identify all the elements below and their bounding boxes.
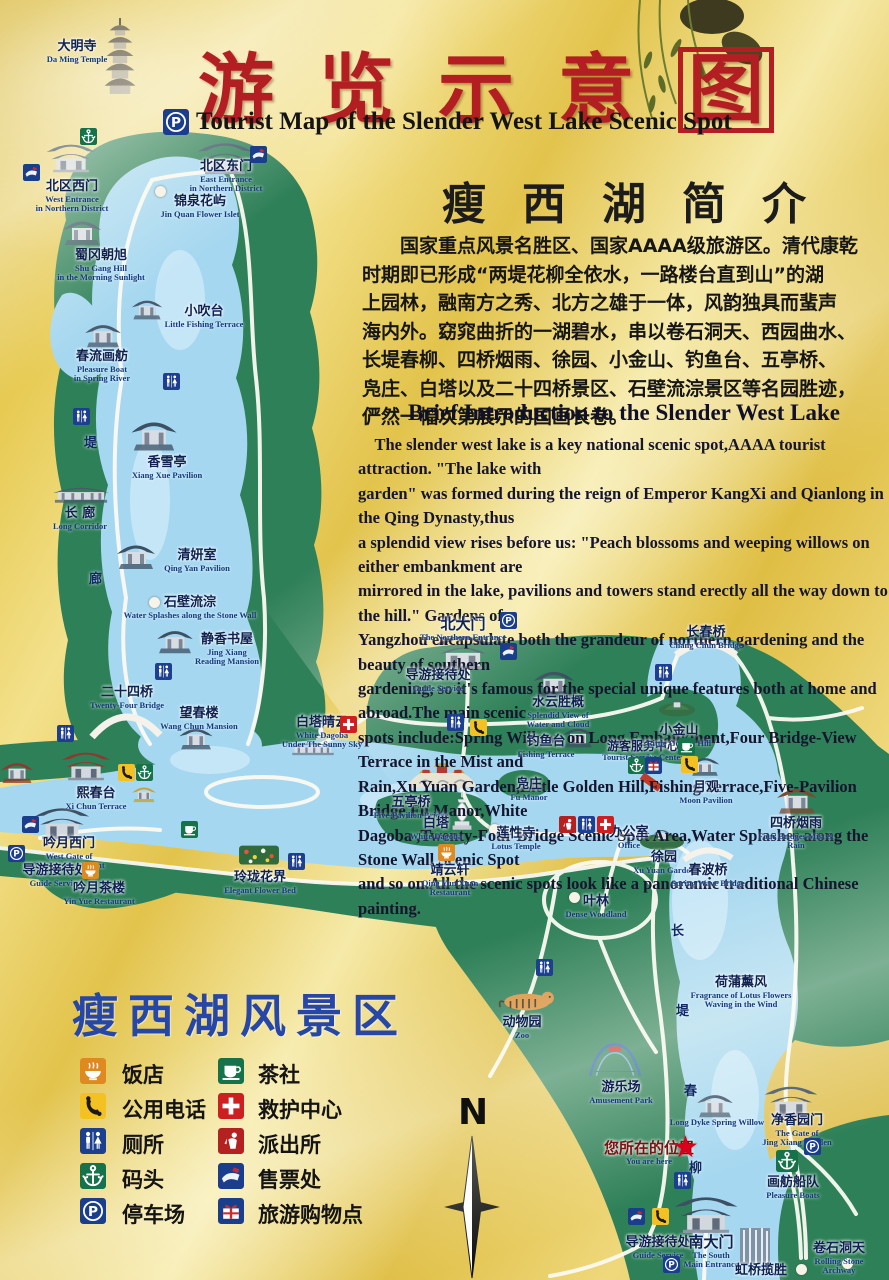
- dock-icon: [776, 1150, 798, 1172]
- map-label-office: 办公室Office: [609, 826, 648, 850]
- toilet-icon: [536, 959, 553, 976]
- first-aid-icon: [340, 716, 357, 733]
- police-icon: [559, 816, 576, 833]
- map-label-wang-chun-mansion: 望春楼Wang Chun Mansion: [160, 707, 237, 731]
- map-label-dense-woodland: 叶林Dense Woodland: [565, 895, 626, 919]
- tea-icon: [678, 738, 695, 755]
- legend-label-ticket: 售票处: [258, 1164, 321, 1194]
- parking-icon: [500, 612, 517, 629]
- dock-icon: [80, 1163, 106, 1189]
- dock-icon: [136, 764, 153, 781]
- map-label-rolling-stone-archway: 卷石洞天Rolling Stone Archway: [813, 1242, 865, 1276]
- map-label-splendid-view-water-cloud: 水云胜概Splendid View of Water and Cloud: [527, 696, 590, 730]
- ticket-icon: [22, 816, 39, 833]
- subtitle: Tourist Map of the Slender West Lake Sce…: [163, 108, 732, 136]
- parking-icon: [8, 845, 25, 862]
- map-label-xiang-xue-pavilion: 香雪亭Xiang Xue Pavilion: [132, 456, 202, 480]
- dock-icon: [80, 128, 97, 145]
- compass-star: [444, 1136, 500, 1278]
- map-label-xi-chun-terrace: 熙春台Xi Chun Terrace: [66, 787, 127, 811]
- legend-heading: 瘦西湖风景区: [72, 980, 408, 1046]
- map-label-jin-quan-flower-islet: 锦泉花屿Jin Quan Flower Islet: [161, 195, 240, 219]
- pagoda-illustration: [105, 18, 136, 94]
- legend-label-first-aid: 救护中心: [258, 1094, 342, 1124]
- ticket-icon: [218, 1163, 244, 1189]
- ticket-icon: [500, 643, 517, 660]
- toilet-icon: [655, 664, 672, 681]
- map-label-qing-yan-pavilion: 清妍室Qing Yan Pavilion: [164, 549, 230, 573]
- map-label-amusement-park: 游乐场Amusement Park: [589, 1081, 653, 1105]
- restaurant-icon: [80, 1058, 106, 1084]
- legend-label-parking: 停车场: [122, 1199, 185, 1229]
- legend-label-restaurant: 饭店: [122, 1059, 164, 1089]
- map-label-elegant-flower-bed: 玲珑花界Elegant Flower Bed: [224, 871, 296, 895]
- map-label-four-bridges-mist-rain: 四桥烟雨Four Bridges Mist & Rain: [750, 817, 843, 851]
- chinese-intro-heading: 瘦西湖简介: [402, 168, 882, 232]
- shopping-icon: [645, 757, 662, 774]
- phone-icon: [118, 764, 135, 781]
- map-label-guide-service-north: 导游接待处Guide Service: [405, 669, 470, 693]
- english-intro-heading: Brief Introduction to the Slender West L…: [360, 400, 888, 426]
- map-label-shu-gang-hill: 蜀冈朝旭Shu Gang Hill in the Morning Sunligh…: [57, 249, 145, 283]
- legend-label-tea: 茶社: [258, 1059, 300, 1089]
- map-label-long-corridor: 长 廊Long Corridor: [53, 507, 107, 531]
- subtitle-text: Tourist Map of the Slender West Lake Sce…: [196, 108, 732, 136]
- waterfall-illustration: [740, 1228, 770, 1264]
- phone-icon: [652, 1208, 669, 1225]
- dike-char-di: 堤: [676, 1000, 689, 1019]
- toilet-icon: [80, 1128, 106, 1154]
- map-label-yin-yue-restaurant: 吟月茶楼Yin Yue Restaurant: [63, 882, 134, 906]
- map-label-guide-service-south: 导游接待处Guide Service: [625, 1236, 690, 1260]
- dike-char-chun: 春: [684, 1080, 697, 1099]
- map-label-white-dagoba: 白塔White Dagoba: [410, 817, 462, 841]
- toilet-icon: [73, 408, 90, 425]
- toilet-icon: [447, 714, 464, 731]
- map-label-fu-manor: 凫庄Fu Manor: [510, 778, 547, 802]
- legend-label-dock: 码头: [122, 1164, 164, 1194]
- restaurant-icon: [82, 862, 99, 879]
- compass-north-label: N: [458, 1092, 488, 1133]
- map-label-chang-chun-bridge: 长春桥Chang Chun Bridge: [669, 626, 742, 650]
- map-label-fishing-terrace: 钓鱼台Fishing Terrace: [518, 735, 575, 759]
- legend-label-shopping: 旅游购物点: [258, 1199, 363, 1229]
- map-label-long-dyke-spring-willow: Long Dyke Spring Willow: [670, 1118, 764, 1128]
- parking-icon: [163, 109, 189, 135]
- dock-icon: [628, 757, 645, 774]
- map-label-da-ming-temple: 大明寺Da Ming Temple: [47, 40, 107, 64]
- toilet-icon: [163, 373, 180, 390]
- map-label-pleasure-boats: 画舫船队Pleasure Boats: [766, 1176, 819, 1200]
- map-label-gate-jing-xiang-garden: 净香园门The Gate of Jing Xiang Garden: [762, 1114, 831, 1148]
- ticket-icon: [628, 1208, 645, 1225]
- map-label-da-hong-bridge: 虹桥揽胜Da Hong Bridge: [731, 1264, 790, 1280]
- map-label-moon-pavilion: 月观Moon Pavilion: [679, 781, 732, 805]
- spot-dot: [796, 1264, 807, 1275]
- legend-label-phone: 公用电话: [122, 1094, 206, 1124]
- shopping-icon: [218, 1198, 244, 1224]
- phone-icon: [681, 756, 698, 773]
- map-label-twenty-four-bridge: 二十四桥Twenty-Four Bridge: [90, 686, 164, 710]
- map-label-jing-xiang-reading-mansion: 静香书屋Jing Xiang Reading Mansion: [195, 633, 259, 667]
- parking-icon: [80, 1198, 106, 1224]
- map-label-little-fishing-terrace: 小吹台Little Fishing Terrace: [165, 305, 244, 329]
- restaurant-icon: [438, 844, 455, 861]
- map-label-west-entrance-north: 北区西门West Entrance in Northern District: [36, 180, 109, 214]
- tea-icon: [181, 821, 198, 838]
- first-aid-icon: [218, 1093, 244, 1119]
- flower-bed-illustration: [239, 846, 279, 865]
- map-label-south-main-entrance: 南大门The South Main Entrance: [683, 1234, 738, 1270]
- police-icon: [218, 1128, 244, 1154]
- tea-icon: [218, 1058, 244, 1084]
- toilet-icon: [674, 1172, 691, 1189]
- parking-icon: [804, 1138, 821, 1155]
- map-label-zoo: 动物园Zoo: [502, 1016, 541, 1040]
- map-label-spring-wave-bridge: 春波桥Spring Wave Bridge: [671, 864, 745, 888]
- map-label-east-entrance-north: 北区东门East Entrance in Northern District: [190, 160, 263, 194]
- parking-icon: [663, 1256, 680, 1273]
- strip-char-lang: 廊: [89, 568, 102, 587]
- map-label-northern-entrance: 北大门The Northern Entrance: [420, 616, 506, 642]
- toilet-icon: [155, 663, 172, 680]
- strip-char-di: 堤: [84, 432, 97, 451]
- ticket-icon: [23, 164, 40, 181]
- legend-label-toilet: 厕所: [122, 1129, 164, 1159]
- map-label-water-splashes-stone-wall: 石壁流淙Water Splashes along the Stone Wall: [124, 596, 257, 620]
- phone-icon: [470, 719, 487, 736]
- legend-label-police: 派出所: [258, 1129, 321, 1159]
- map-label-lotus-temple: 莲性寺Lotus Temple: [491, 827, 540, 851]
- map-label-qing-yun-xuan-restaurant: 靖云轩Qing Yun Xuan Restaurant: [422, 864, 479, 898]
- toilet-icon: [578, 816, 595, 833]
- map-label-pleasure-boat-spring-river: 春流画舫Pleasure Boat in Spring River: [74, 350, 130, 384]
- tourist-map-sign: P: [0, 0, 889, 1280]
- toilet-icon: [288, 853, 305, 870]
- ticket-icon: [250, 146, 267, 163]
- map-label-fragrance-lotus-flowers: 荷蒲薰风Fragrance of Lotus Flowers Waving in…: [691, 976, 792, 1010]
- you-are-here-star: ★: [672, 1133, 699, 1163]
- phone-icon: [80, 1093, 106, 1119]
- toilet-icon: [57, 725, 74, 742]
- first-aid-icon: [597, 816, 614, 833]
- dike-char-chang: 长: [671, 920, 684, 939]
